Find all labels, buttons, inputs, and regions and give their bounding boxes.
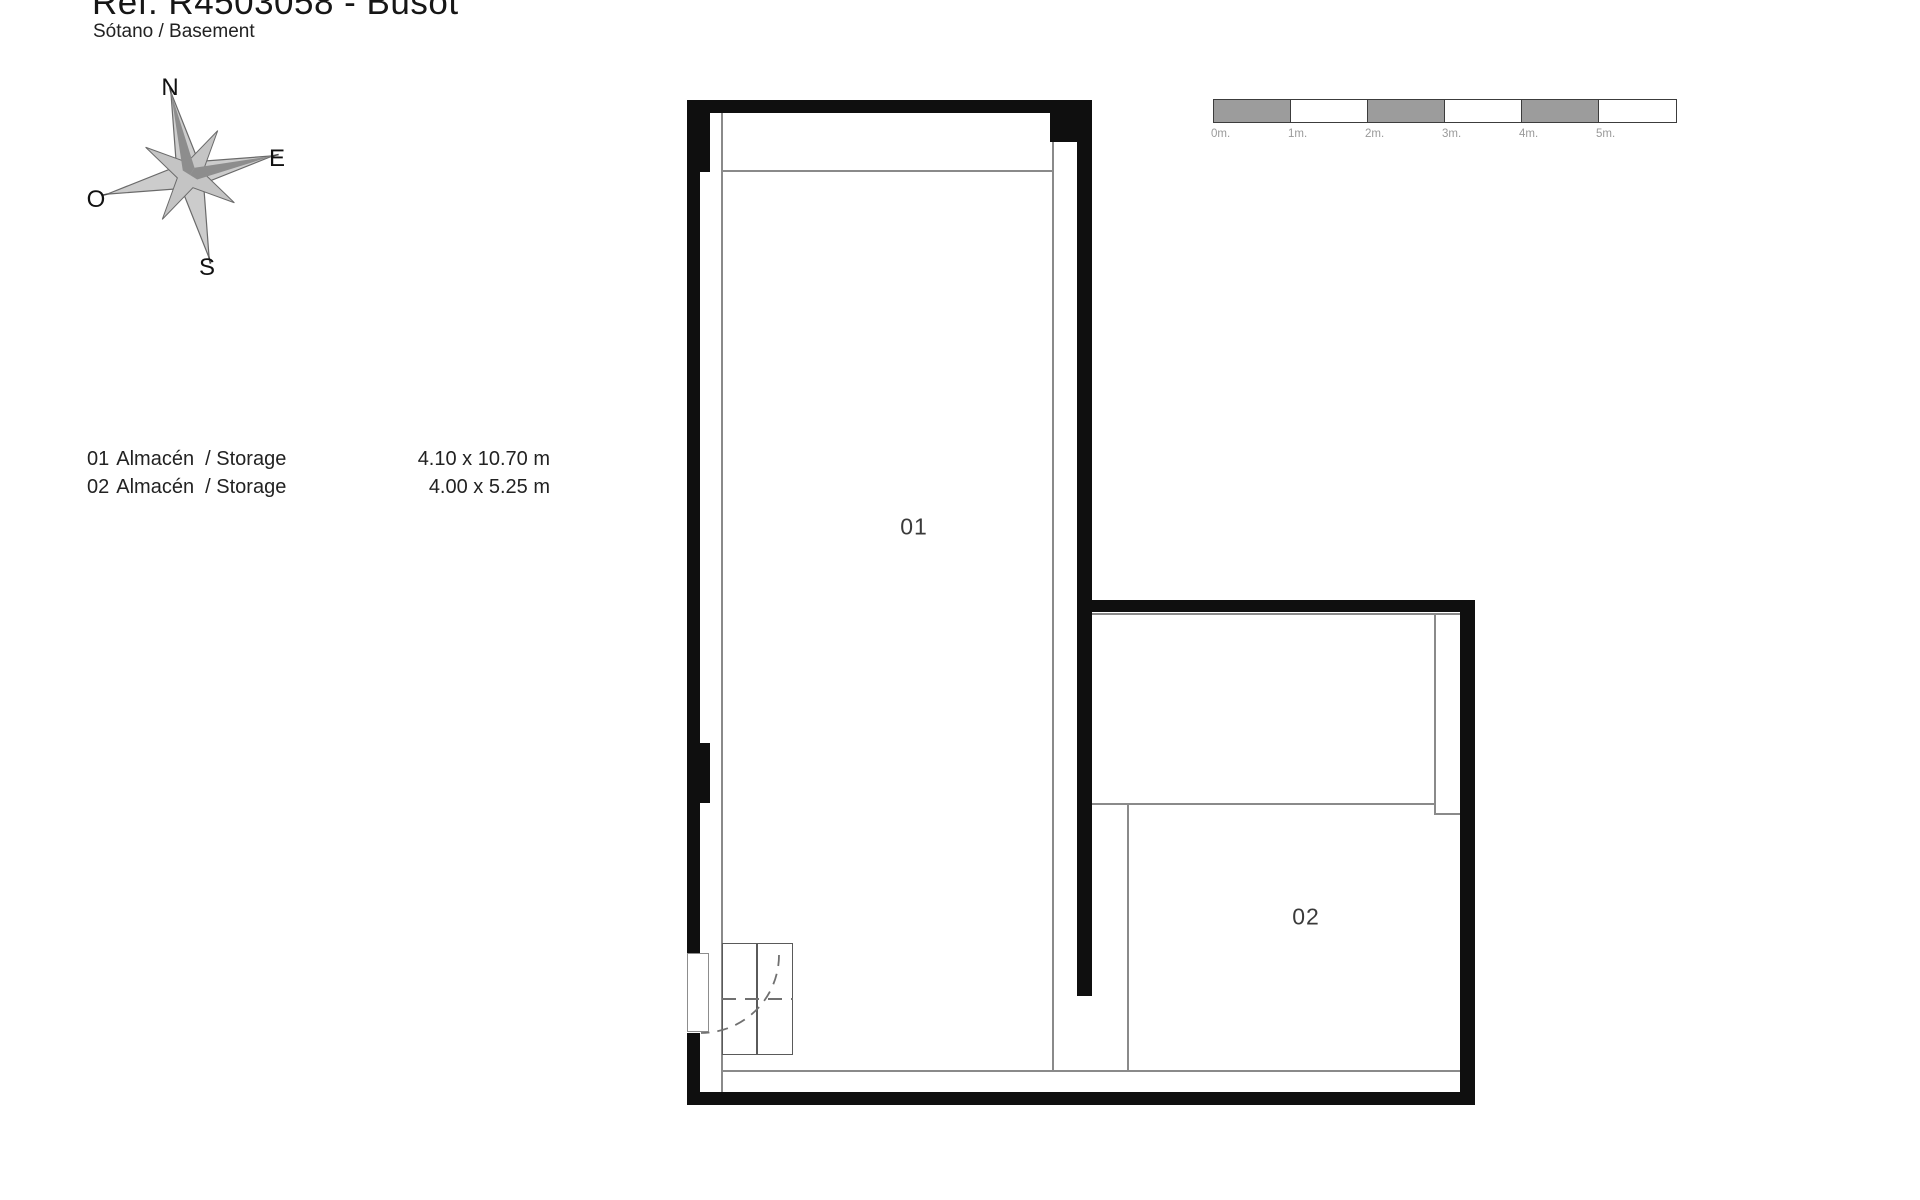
scale-label-2m: 2m.	[1365, 128, 1384, 140]
wall-wing-top	[1077, 600, 1475, 612]
room-legend: 01Almacén / Storage 4.10 x 10.70 m 02Alm…	[87, 445, 550, 501]
wall-divider	[1077, 100, 1092, 996]
legend-room-name: 02Almacén / Storage	[87, 473, 286, 501]
interior-line-right-vertical	[1052, 142, 1054, 1071]
compass-rose-icon	[70, 55, 310, 295]
scale-segment	[1291, 100, 1368, 122]
scale-label-1m: 1m.	[1288, 128, 1307, 140]
compass-label-north: N	[161, 74, 178, 102]
page-title: Ref. R4503058 - Busot	[92, 0, 459, 22]
floor-plan-page: Ref. R4503058 - Busot Sótano / Basement …	[0, 0, 1920, 1200]
compass-label-east: E	[269, 145, 285, 173]
room-label-01: 01	[900, 514, 928, 541]
legend-room-title: Almacén / Storage	[116, 448, 286, 470]
wall-bottom	[687, 1092, 1475, 1105]
wall-top	[687, 100, 1092, 113]
compass-label-south: S	[199, 254, 215, 282]
room-label-02: 02	[1292, 904, 1320, 931]
legend-row: 02Almacén / Storage 4.00 x 5.25 m	[87, 473, 550, 501]
scale-segment	[1445, 100, 1522, 122]
interior-line-room02-step	[1434, 813, 1460, 815]
interior-line-room02-middle	[1092, 803, 1436, 805]
interior-line-room02-right	[1434, 613, 1436, 815]
interior-line-room02-left	[1127, 803, 1129, 1072]
scale-label-5m: 5m.	[1596, 128, 1615, 140]
compass-label-west: O	[87, 186, 106, 214]
scale-label-3m: 3m.	[1442, 128, 1461, 140]
wall-right	[1460, 600, 1475, 1105]
legend-room-number: 02	[87, 476, 109, 498]
scale-segment	[1599, 100, 1676, 122]
interior-line-top-horizontal	[722, 170, 1052, 172]
scale-label-0m: 0m.	[1211, 128, 1230, 140]
wall-pilaster-left	[687, 743, 710, 803]
wall-left-upper	[687, 100, 700, 953]
door-opening	[687, 953, 709, 1032]
scale-bar	[1213, 99, 1677, 123]
scale-segment	[1522, 100, 1599, 122]
legend-room-dimensions: 4.00 x 5.25 m	[429, 473, 550, 501]
door-leaf-divider	[756, 943, 758, 1055]
scale-label-4m: 4m.	[1519, 128, 1538, 140]
scale-segment	[1368, 100, 1445, 122]
interior-line-room02-top	[1092, 613, 1460, 615]
legend-room-title: Almacén / Storage	[116, 476, 286, 498]
page-subtitle: Sótano / Basement	[93, 21, 255, 43]
legend-room-number: 01	[87, 448, 109, 470]
scale-segment	[1214, 100, 1291, 122]
legend-room-name: 01Almacén / Storage	[87, 445, 286, 473]
interior-line-bottom-horizontal	[722, 1070, 1460, 1072]
wall-corner-top-left	[687, 100, 710, 172]
legend-row: 01Almacén / Storage 4.10 x 10.70 m	[87, 445, 550, 473]
door-swing-overlay	[0, 0, 1920, 1200]
legend-room-dimensions: 4.10 x 10.70 m	[418, 445, 550, 473]
